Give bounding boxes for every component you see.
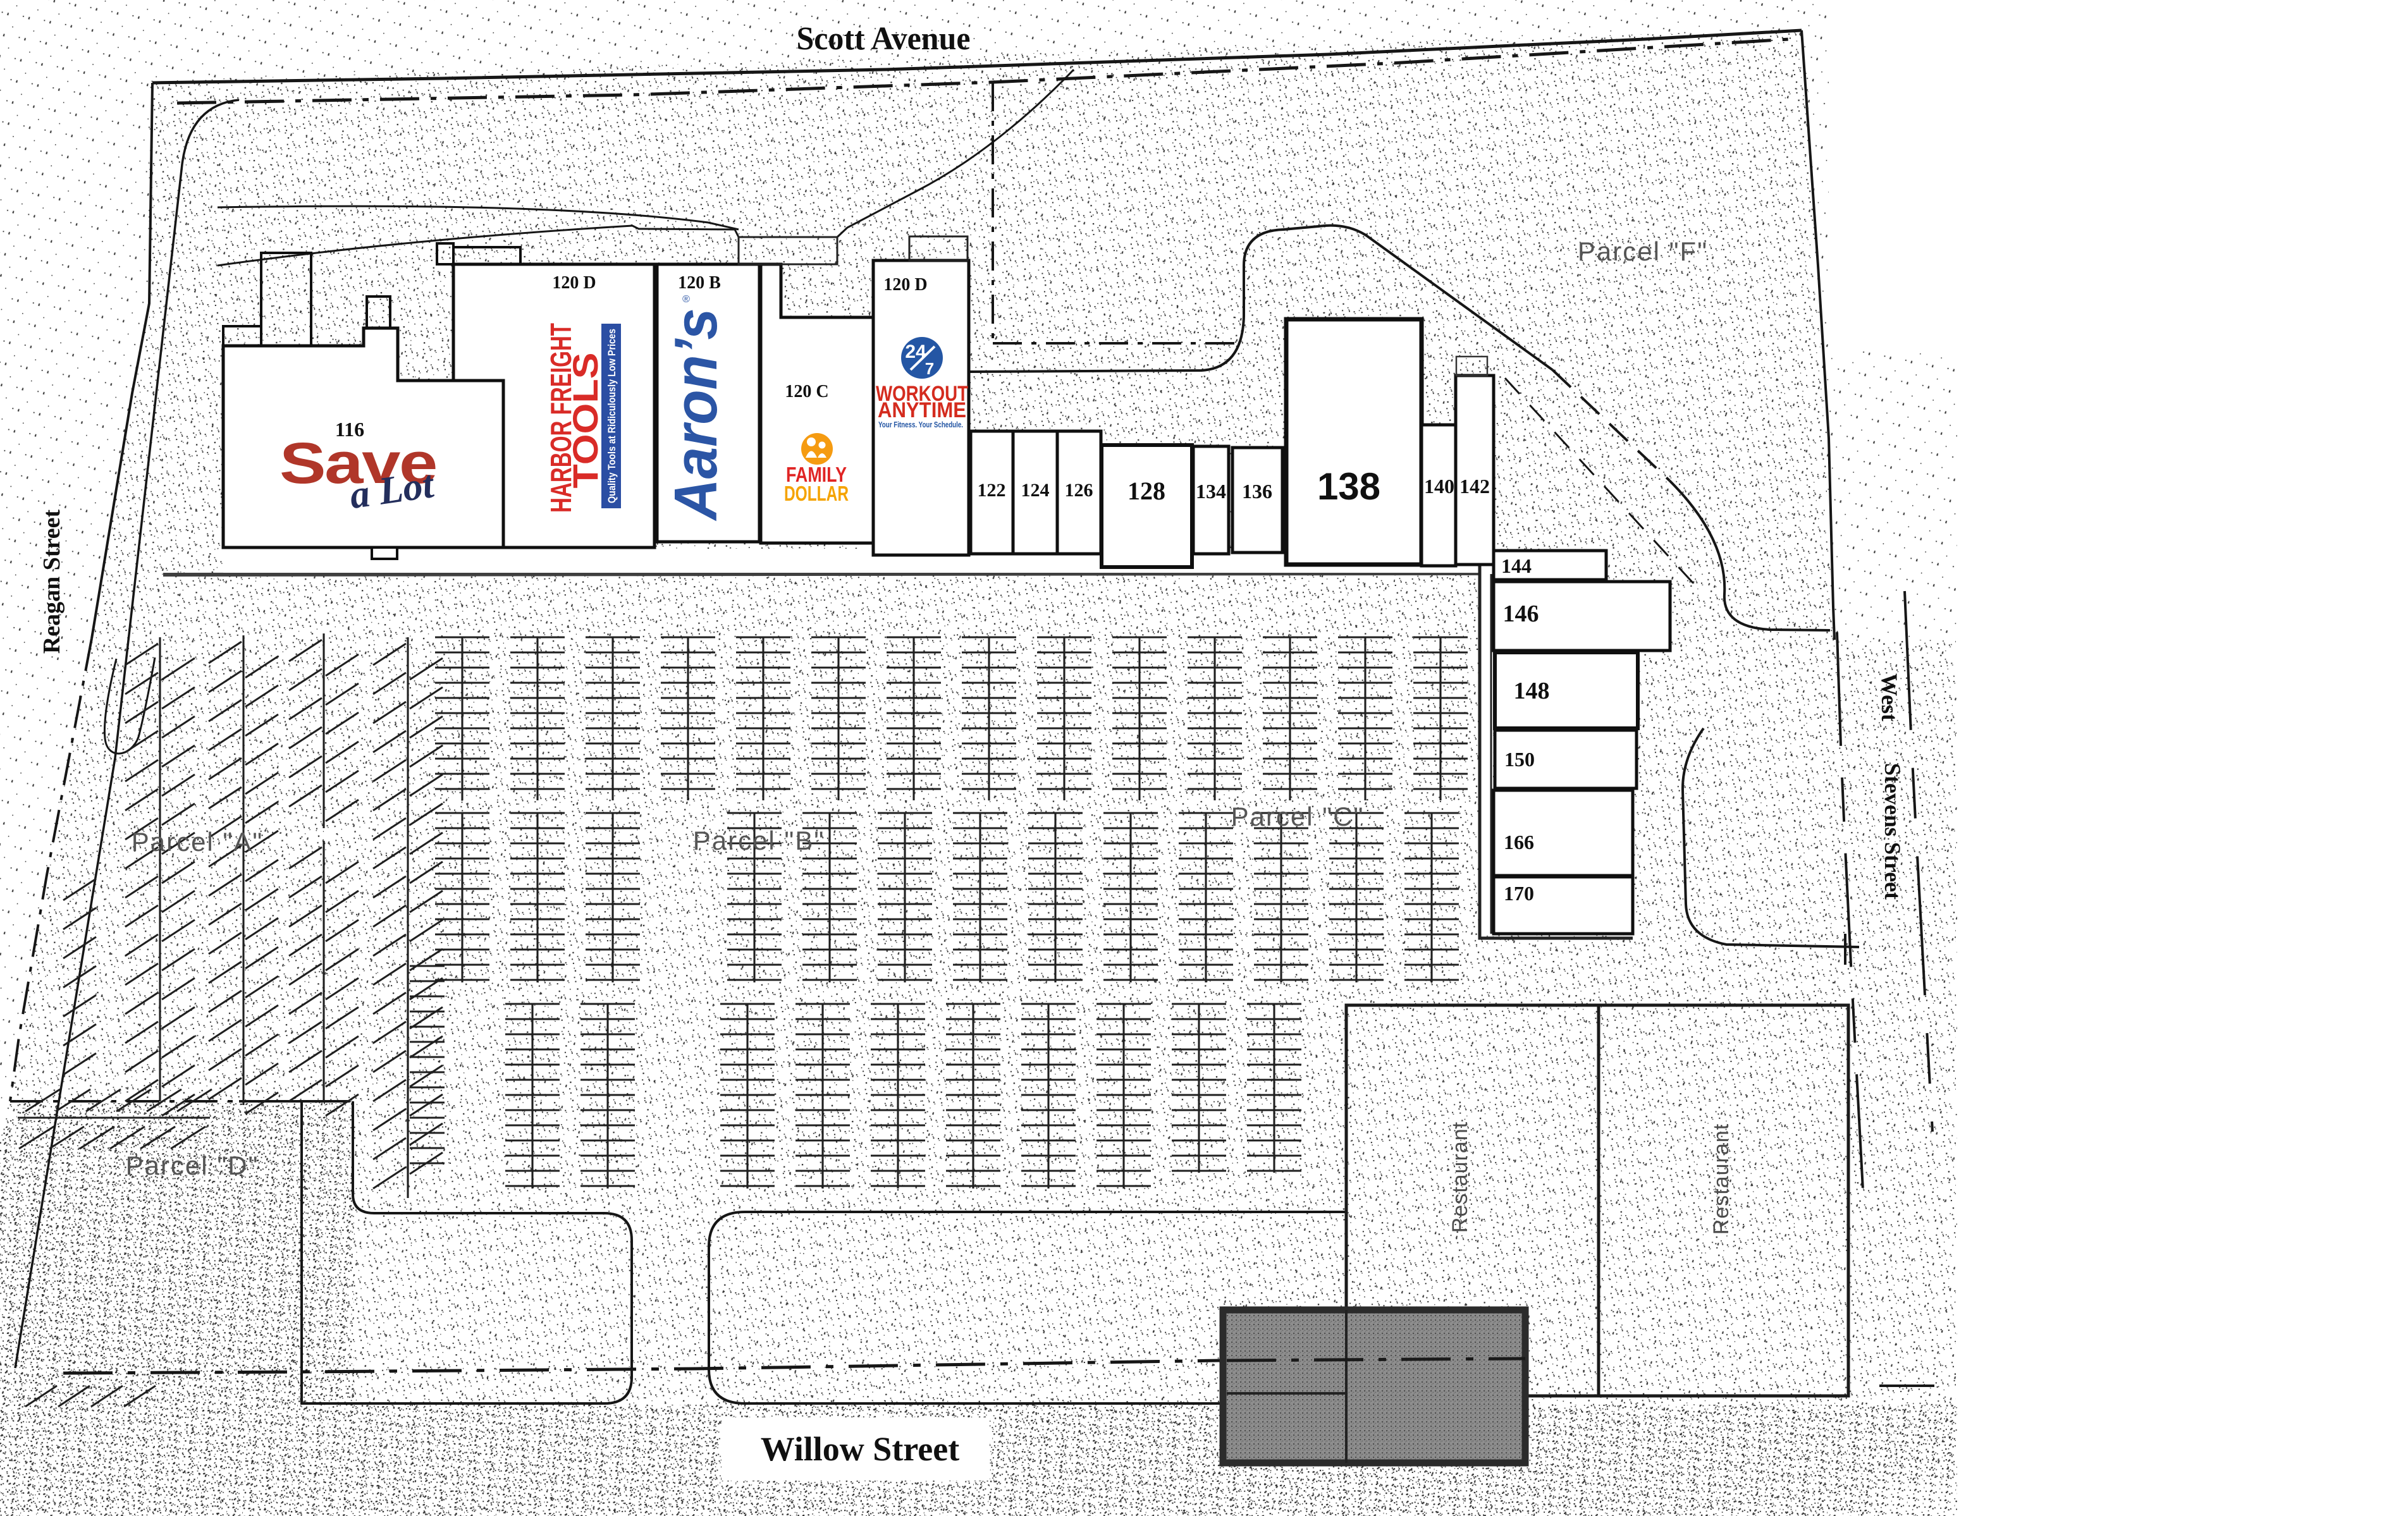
svg-text:Stevens Street: Stevens Street (1880, 763, 1905, 900)
svg-text:124: 124 (1021, 480, 1050, 501)
svg-text:Your Fitness. Your Schedule.: Your Fitness. Your Schedule. (878, 420, 963, 429)
svg-text:Scott Avenue: Scott Avenue (797, 21, 971, 57)
svg-text:Parcel "B": Parcel "B" (693, 826, 825, 855)
svg-text:ANYTIME: ANYTIME (878, 398, 966, 422)
svg-text:120 C: 120 C (785, 382, 828, 401)
svg-text:122: 122 (978, 480, 1006, 501)
svg-text:146: 146 (1503, 601, 1539, 627)
svg-text:120 D: 120 D (883, 275, 927, 295)
svg-text:128: 128 (1127, 477, 1165, 505)
svg-text:West: West (1877, 673, 1902, 721)
svg-text:Reagan Street: Reagan Street (39, 510, 65, 654)
svg-text:170: 170 (1504, 882, 1534, 905)
svg-text:Willow Street: Willow Street (761, 1430, 959, 1468)
svg-text:Parcel "A": Parcel "A" (132, 827, 264, 857)
svg-text:DOLLAR: DOLLAR (784, 482, 849, 505)
svg-text:120 D: 120 D (552, 273, 596, 293)
svg-text:Parcel "D": Parcel "D" (126, 1151, 259, 1180)
svg-text:TOOLS: TOOLS (565, 353, 605, 489)
svg-text:144: 144 (1501, 554, 1532, 577)
svg-text:142: 142 (1459, 475, 1490, 498)
svg-text:120 B: 120 B (678, 273, 721, 293)
svg-text:150: 150 (1504, 748, 1535, 771)
svg-text:116: 116 (335, 418, 364, 441)
svg-text:136: 136 (1242, 480, 1272, 503)
svg-text:148: 148 (1514, 678, 1550, 704)
svg-text:138: 138 (1317, 465, 1380, 508)
svg-text:140: 140 (1424, 475, 1454, 498)
svg-text:166: 166 (1504, 831, 1534, 853)
svg-text:Parcel "C": Parcel "C" (1231, 802, 1365, 831)
svg-text:Parcel "F": Parcel "F" (1578, 236, 1708, 266)
svg-text:Aaron’s: Aaron’s (662, 309, 730, 522)
svg-text:134: 134 (1196, 480, 1226, 503)
svg-text:®: ® (682, 294, 690, 305)
svg-text:Restaurant: Restaurant (1448, 1122, 1472, 1233)
svg-text:126: 126 (1065, 480, 1093, 501)
svg-text:Restaurant: Restaurant (1709, 1123, 1733, 1235)
svg-text:7: 7 (925, 359, 934, 378)
svg-text:Quality Tools at Ridiculously: Quality Tools at Ridiculously Low Prices (606, 329, 618, 503)
